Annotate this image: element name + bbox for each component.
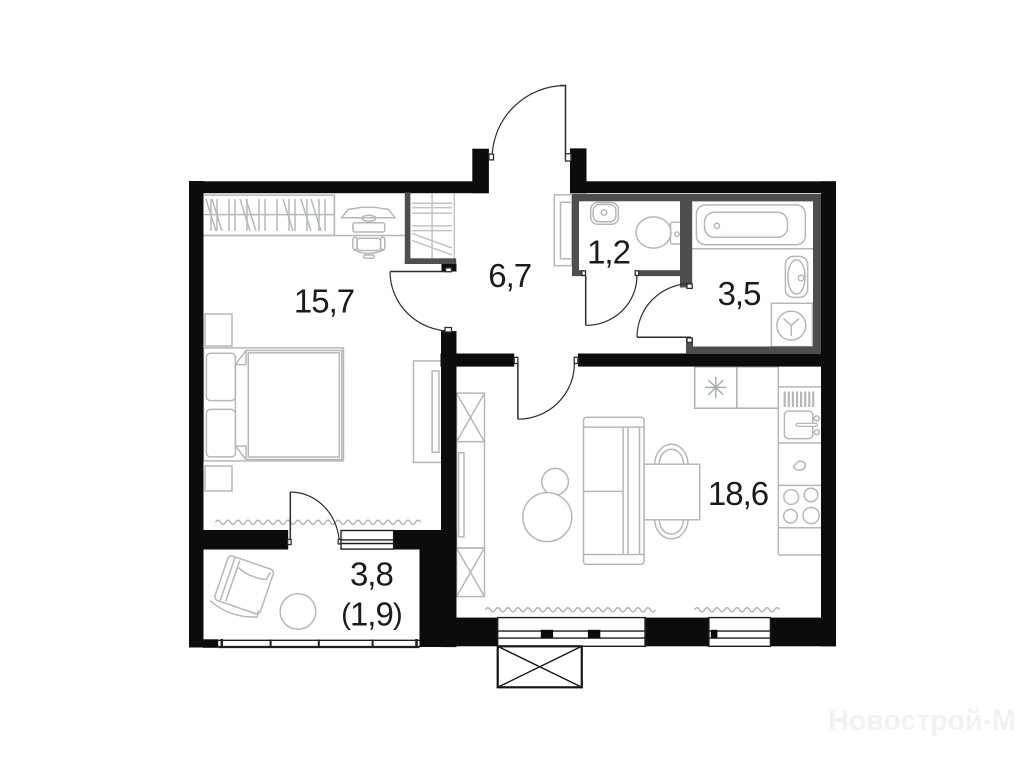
svg-text:(1,9): (1,9): [341, 596, 402, 633]
svg-text:1,2: 1,2: [587, 233, 630, 270]
svg-text:15,7: 15,7: [294, 283, 354, 320]
svg-text:3,8: 3,8: [350, 556, 393, 593]
svg-text:3,5: 3,5: [718, 275, 761, 312]
svg-text:18,6: 18,6: [708, 475, 768, 512]
svg-text:6,7: 6,7: [488, 257, 531, 294]
svg-text:Новострой-М: Новострой-М: [828, 705, 1016, 737]
